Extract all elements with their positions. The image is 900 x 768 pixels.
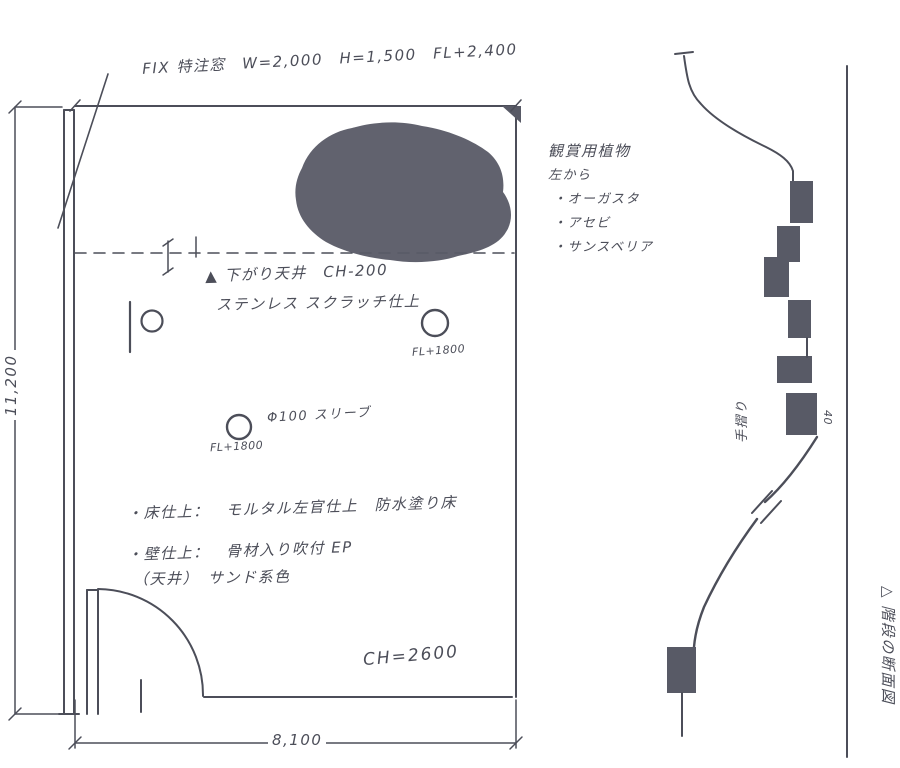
section-ground-curve-top xyxy=(675,52,793,181)
riser-dimension-label: 40 xyxy=(821,410,834,425)
window-note-leader xyxy=(58,74,108,228)
wall-finish-note-2: （天井） サンド系色 xyxy=(133,566,291,590)
door-and-jamb xyxy=(87,589,203,714)
handrail-label: 手摺り xyxy=(731,399,750,443)
plant-list-title: 観賞用植物 xyxy=(548,140,631,163)
hand-drawn-plan-sketch: FIX 特注窓 W=2,000 H=1,500 FL+2,400 観賞用植物 左… xyxy=(0,0,900,768)
section-handrail-curve xyxy=(694,437,817,647)
section-steps xyxy=(764,181,817,435)
downlight-level-label-b: FL+1800 xyxy=(210,439,264,455)
section-base-block xyxy=(667,647,696,693)
height-dimension-label: 11,200 xyxy=(2,351,20,421)
plant-list-from-left: 左から xyxy=(548,164,592,187)
door-swing-arc xyxy=(98,589,203,696)
planting-bed-blob xyxy=(295,122,511,262)
plant-item: ・オーガスタ xyxy=(553,188,640,211)
section-caption: △ 階段の断面図 xyxy=(878,586,899,704)
drop-dimension-marks xyxy=(163,237,196,275)
sleeve-circle xyxy=(227,415,251,439)
plant-item: ・サンスベリア xyxy=(553,236,653,259)
small-fixture-circle xyxy=(130,302,163,352)
drop-ceiling-finish-note: ステンレス スクラッチ仕上 xyxy=(216,290,421,315)
corner-marker-triangle xyxy=(502,106,521,123)
downlight-circle-a xyxy=(422,310,448,336)
width-dimension-label: 8,100 xyxy=(268,731,326,749)
plant-item: ・アセビ xyxy=(553,212,611,235)
